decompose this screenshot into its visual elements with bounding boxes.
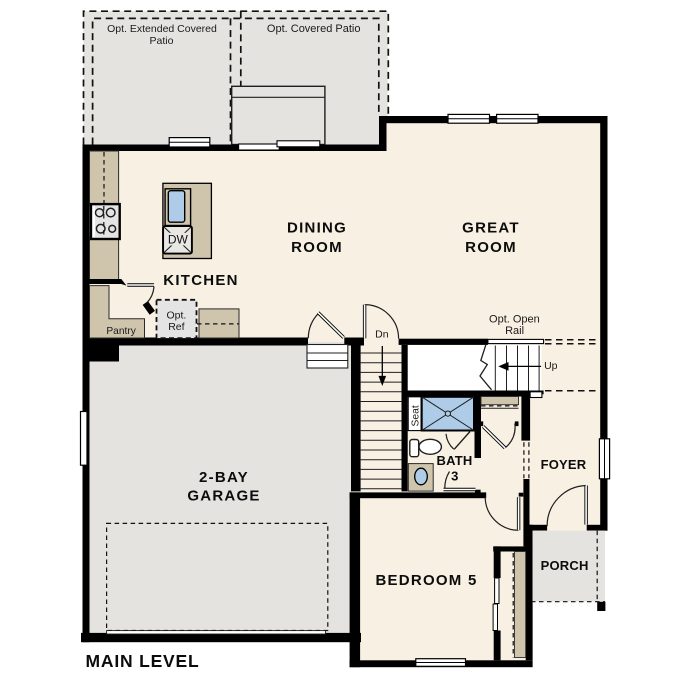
svg-text:PORCH: PORCH bbox=[541, 558, 589, 573]
svg-text:BEDROOM 5: BEDROOM 5 bbox=[375, 572, 477, 589]
svg-text:GREAT: GREAT bbox=[462, 220, 520, 237]
svg-text:Opt. Extended Covered: Opt. Extended Covered bbox=[107, 23, 217, 35]
svg-text:ROOM: ROOM bbox=[291, 239, 343, 256]
svg-text:Patio: Patio bbox=[150, 35, 174, 47]
svg-text:Seat: Seat bbox=[411, 405, 422, 426]
svg-text:Opt. Open: Opt. Open bbox=[489, 314, 540, 326]
svg-text:Pantry: Pantry bbox=[106, 326, 136, 337]
svg-text:Dn: Dn bbox=[375, 329, 389, 341]
svg-text:Opt. Covered Patio: Opt. Covered Patio bbox=[267, 23, 361, 35]
svg-text:Opt.: Opt. bbox=[166, 309, 186, 321]
svg-text:KITCHEN: KITCHEN bbox=[163, 272, 238, 289]
svg-text:Ref: Ref bbox=[168, 321, 184, 333]
svg-text:DINING: DINING bbox=[287, 220, 347, 237]
svg-text:2-BAY: 2-BAY bbox=[199, 469, 249, 486]
svg-text:ROOM: ROOM bbox=[465, 239, 517, 256]
svg-text:3: 3 bbox=[451, 469, 458, 484]
svg-text:MAIN LEVEL: MAIN LEVEL bbox=[86, 651, 200, 671]
svg-text:FOYER: FOYER bbox=[541, 457, 587, 472]
svg-text:DW: DW bbox=[168, 233, 189, 247]
svg-text:BATH: BATH bbox=[437, 453, 473, 468]
svg-text:Rail: Rail bbox=[505, 325, 524, 337]
svg-text:Up: Up bbox=[544, 360, 558, 372]
svg-text:GARAGE: GARAGE bbox=[187, 488, 260, 505]
